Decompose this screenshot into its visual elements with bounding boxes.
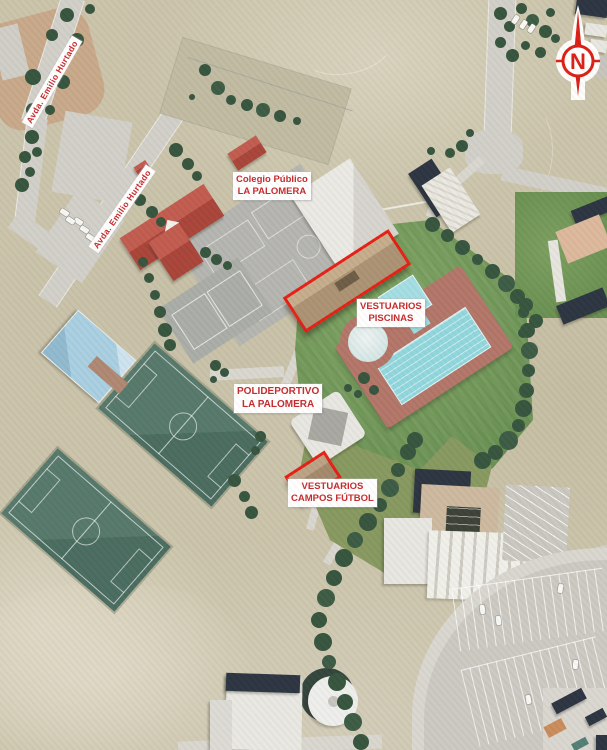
roof-vent bbox=[334, 270, 360, 291]
sports-center-label: POLIDEPORTIVO LA PALOMERA bbox=[234, 384, 322, 413]
compass-north-label: N bbox=[570, 49, 586, 74]
football-changing-rooms-label: VESTUARIOS CAMPOS FÚTBOL bbox=[288, 479, 377, 507]
pitch-centre-circle bbox=[163, 407, 203, 447]
football-label-line2: CAMPOS FÚTBOL bbox=[291, 493, 374, 504]
service-west-building bbox=[384, 518, 432, 584]
tree-line-south bbox=[400, 444, 416, 460]
tree-row-school-west bbox=[169, 143, 183, 157]
pool-label-line1: VESTUARIOS bbox=[360, 301, 422, 312]
pool-changing-rooms-label: VESTUARIOS PISCINAS bbox=[357, 299, 425, 327]
pool-label-line2: PISCINAS bbox=[368, 313, 413, 324]
school-label-line2: LA PALOMERA bbox=[238, 186, 307, 197]
parked-car bbox=[573, 660, 579, 669]
sports-center-label-line2: LA PALOMERA bbox=[242, 399, 314, 410]
tree-cluster-pool-southwest bbox=[358, 372, 370, 384]
tree-row-avenue bbox=[60, 8, 74, 22]
corner-roof-tan bbox=[543, 718, 566, 738]
corner-block bbox=[543, 688, 607, 750]
school-label-line1: Colegio Público bbox=[236, 174, 308, 185]
tree-cluster-topright bbox=[494, 7, 507, 20]
compass-rose: N bbox=[550, 4, 606, 104]
path-north-of-sportscenter bbox=[210, 366, 284, 381]
tree-cluster-east-lawn bbox=[519, 298, 533, 312]
corner-roof bbox=[551, 688, 587, 715]
dirt-trail bbox=[295, 9, 399, 83]
school-entrance-plaza bbox=[51, 111, 132, 204]
tree-hedge-pool-east bbox=[425, 217, 440, 232]
tree-cluster-garden bbox=[199, 64, 211, 76]
sports-hall-annex bbox=[210, 700, 232, 750]
tree-cluster-field-east bbox=[228, 474, 241, 487]
parked-car bbox=[527, 23, 536, 33]
round-pool bbox=[348, 322, 388, 362]
aerial-map: Avda. Emilio Hurtado Avda. Emilio Hurtad… bbox=[0, 0, 607, 750]
parked-car bbox=[495, 616, 501, 626]
sports-hall-roof bbox=[226, 673, 301, 694]
corner-roof bbox=[596, 735, 607, 750]
corner-roof bbox=[585, 708, 607, 726]
school-label: Colegio Público LA PALOMERA bbox=[233, 172, 311, 200]
football-label-line1: VESTUARIOS bbox=[302, 481, 364, 492]
round-building-cap bbox=[328, 696, 339, 707]
pitch-penalty-box bbox=[18, 468, 60, 513]
sports-center-label-line1: POLIDEPORTIVO bbox=[237, 386, 319, 397]
parked-car bbox=[479, 605, 485, 615]
parked-car bbox=[519, 19, 528, 29]
tree-cluster-junction bbox=[456, 140, 468, 152]
corner-roof-teal bbox=[571, 737, 589, 750]
pitch-centre-circle bbox=[66, 512, 106, 552]
tree-cluster-courtyard bbox=[200, 247, 211, 258]
